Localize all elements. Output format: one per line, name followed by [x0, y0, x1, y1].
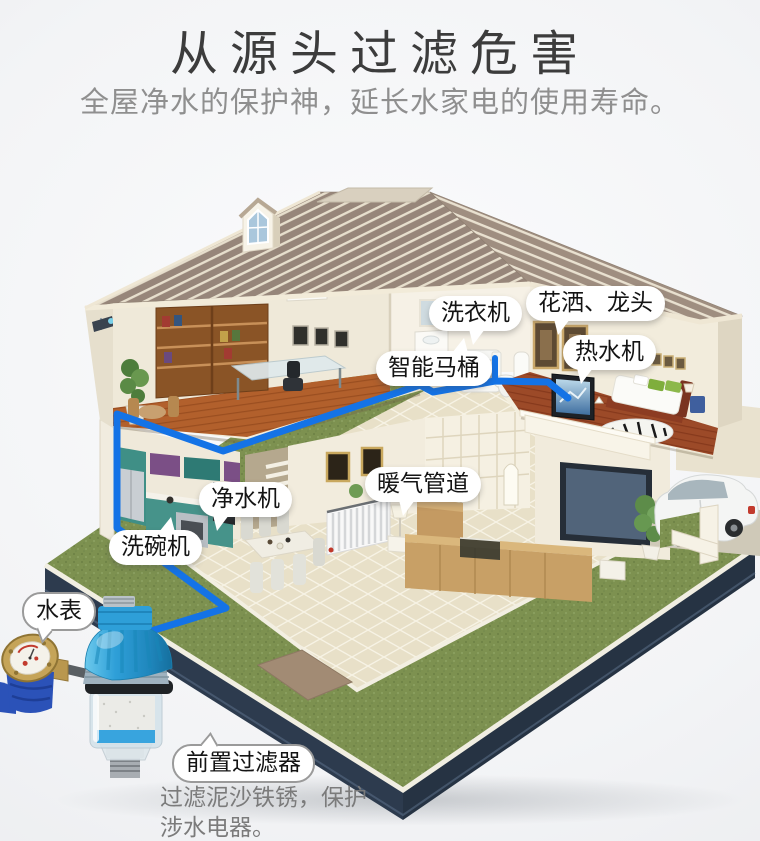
- callout-water-meter: 水表: [22, 592, 96, 631]
- promo-page: 从源头过滤危害 全屋净水的保护神，延长水家电的使用寿命。: [0, 0, 760, 841]
- product-description: 过滤泥沙铁锈，保护 涉水电器。: [160, 782, 367, 841]
- description-line-1: 过滤泥沙铁锈，保护: [160, 782, 367, 812]
- page-subtitle: 全屋净水的保护神，延长水家电的使用寿命。: [0, 79, 760, 121]
- page-title: 从源头过滤危害: [0, 14, 760, 84]
- callout-water-heater: 热水机: [563, 335, 656, 370]
- callout-pre-filter: 前置过滤器: [172, 744, 315, 783]
- callout-water-purifier: 净水机: [199, 482, 292, 517]
- bookshelf: [156, 304, 268, 398]
- callout-smart-toilet: 智能马桶: [376, 351, 492, 386]
- description-line-2: 涉水电器。: [160, 812, 367, 841]
- callout-washing-machine: 洗衣机: [429, 296, 522, 331]
- callout-shower-faucet: 花洒、龙头: [526, 286, 665, 321]
- dormer: [240, 200, 280, 252]
- callout-dishwasher: 洗碗机: [109, 530, 202, 565]
- roof-ridge: [317, 188, 432, 202]
- callout-heating-pipes: 暖气管道: [365, 467, 481, 502]
- water-meter-product: [0, 629, 92, 714]
